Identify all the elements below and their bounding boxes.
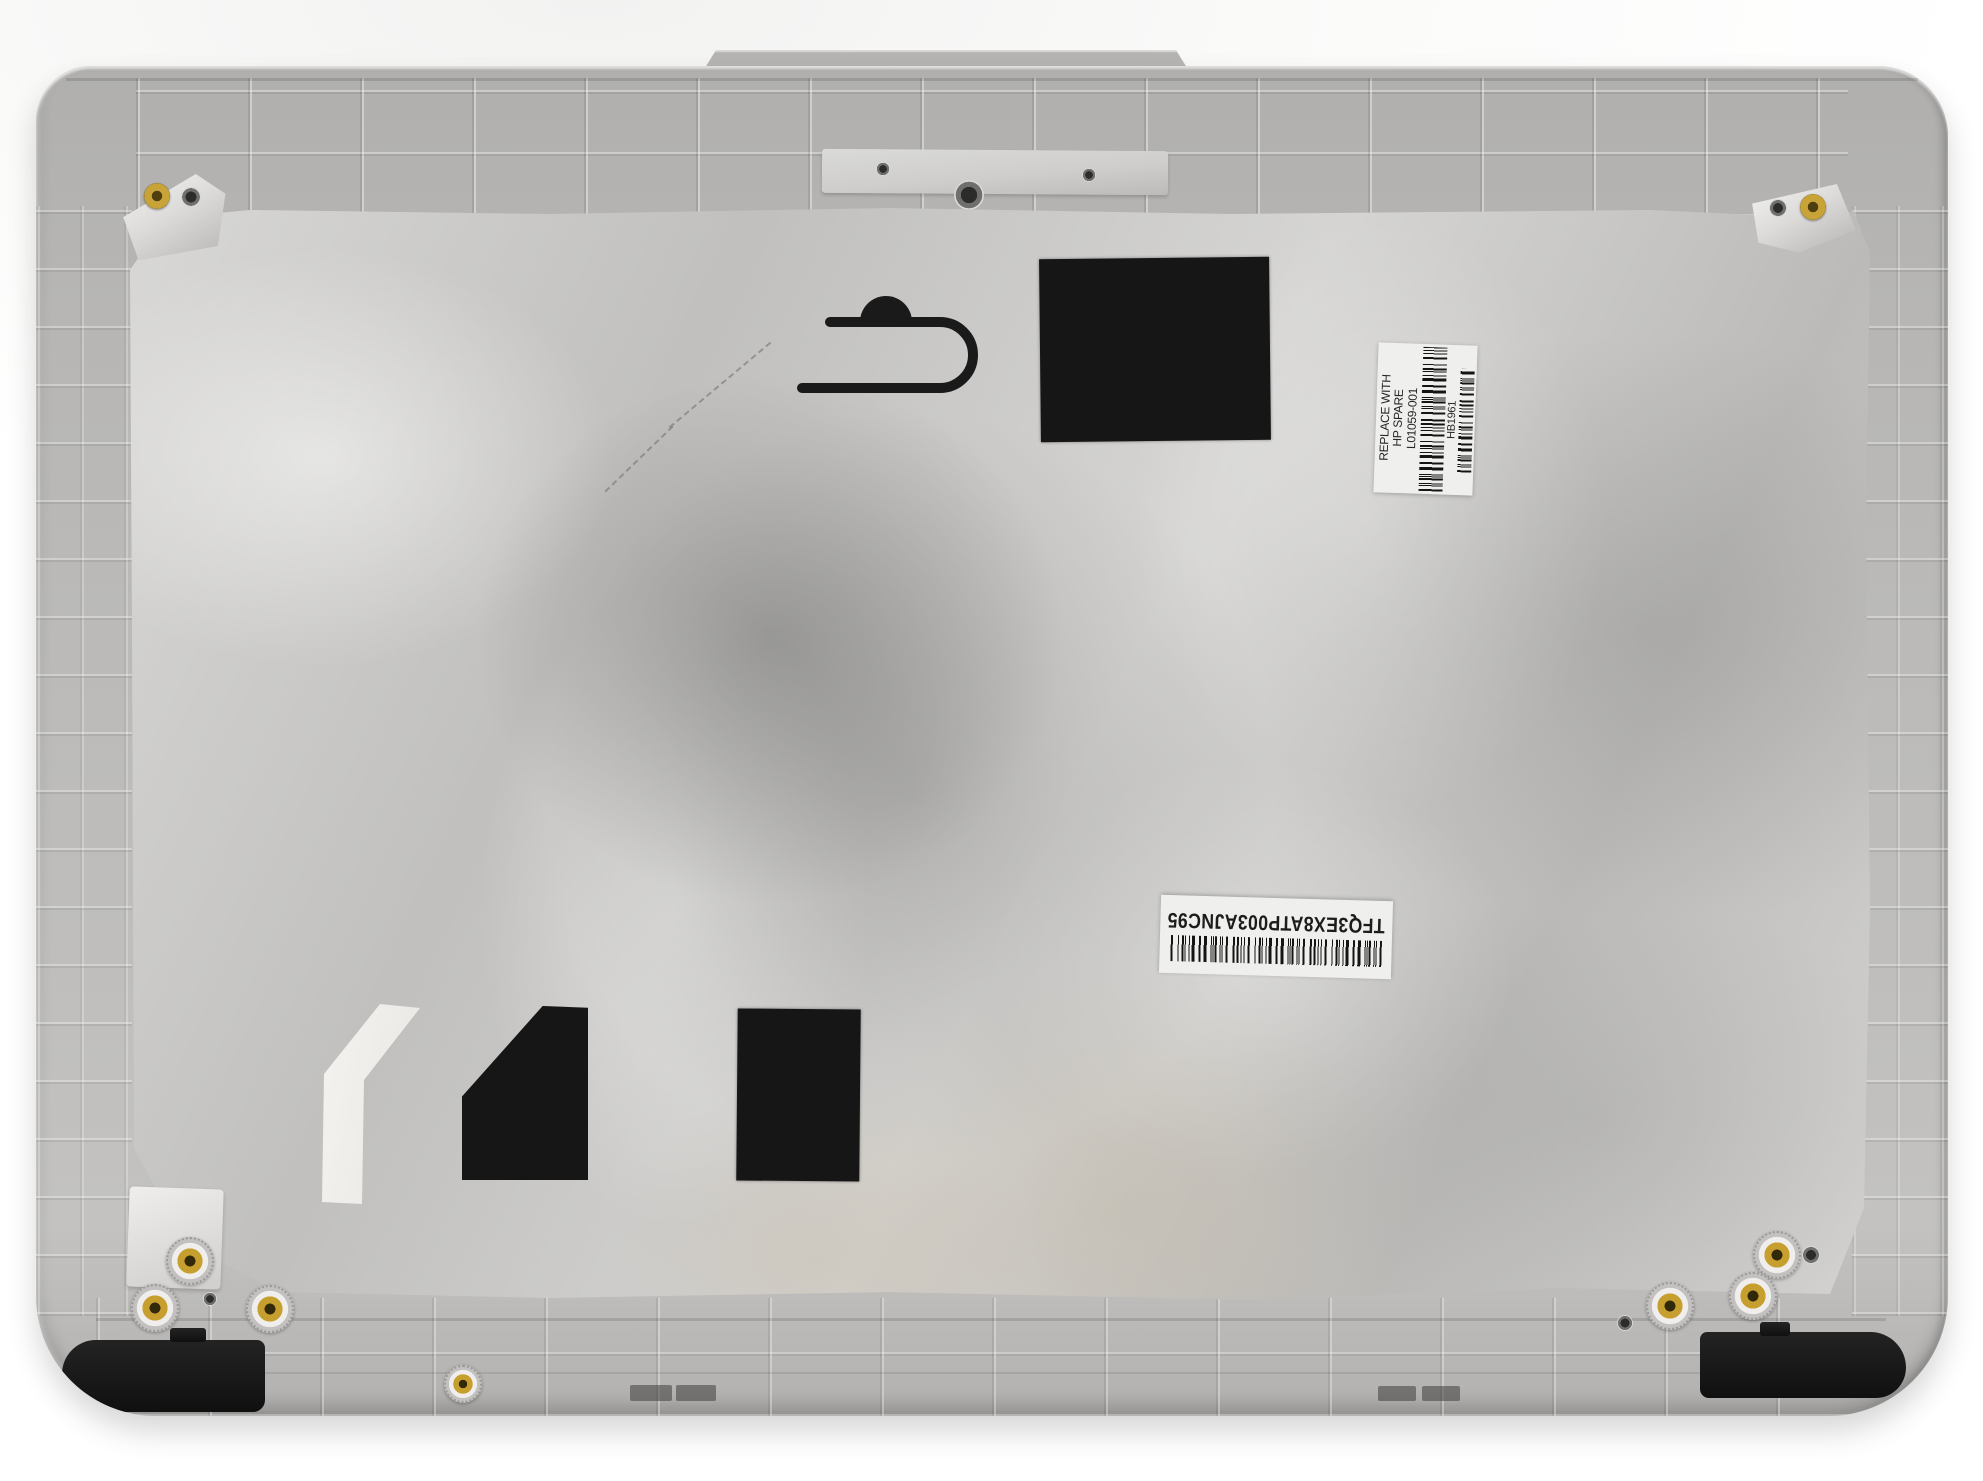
hinge-cap-right	[1700, 1332, 1906, 1398]
screw-hole-icon	[1617, 1315, 1633, 1331]
hinge-cap-left-notch	[170, 1328, 206, 1342]
barcode-icon	[1457, 368, 1475, 472]
hinge-screw-boss	[166, 1237, 214, 1285]
molded-rib-rail-left	[36, 206, 132, 1316]
silver-screw-icon	[143, 1251, 165, 1273]
top-edge-seam	[66, 78, 1918, 81]
barcode-icon	[1419, 347, 1448, 492]
antenna-pad-top	[1039, 257, 1271, 442]
serial-number: TFQ3EX8ATP003AJNC95	[1167, 907, 1385, 937]
hinge-screw-boss	[246, 1285, 294, 1333]
round-hole-icon	[954, 180, 984, 210]
hinge-cap-left	[62, 1340, 265, 1412]
hinge-screw-boss	[1646, 1282, 1694, 1330]
vent-slot	[1422, 1386, 1460, 1401]
bottom-edge-seam	[96, 1372, 1886, 1374]
screw-hole-icon	[181, 187, 201, 207]
hinge-screw-boss	[131, 1284, 179, 1332]
hp-spare-label: REPLACE WITH HP SPARE L01059-001 HB1961	[1373, 342, 1477, 495]
webcam-u-outline	[802, 322, 973, 388]
screw-hole-icon	[203, 1292, 217, 1306]
bracket-screw-hole-icon	[1082, 168, 1096, 182]
lcd-back-cover-body: REPLACE WITH HP SPARE L01059-001 HB1961 …	[36, 66, 1948, 1416]
hinge-screw-boss	[1729, 1272, 1777, 1320]
product-photo-laptop-back-cover: REPLACE WITH HP SPARE L01059-001 HB1961 …	[0, 0, 1983, 1481]
antenna-pad-bottom-mid	[736, 1008, 860, 1181]
hinge-screw-boss	[1753, 1231, 1801, 1279]
hinge-screw-boss	[444, 1365, 482, 1403]
vent-slot	[676, 1385, 716, 1401]
hp-spare-label-content: REPLACE WITH HP SPARE L01059-001 HB1961	[1374, 342, 1477, 495]
gold-screw-icon	[1800, 194, 1826, 220]
metal-bracket	[822, 149, 1168, 195]
vent-slot	[1378, 1386, 1416, 1401]
label-code: HB1961	[1446, 401, 1459, 439]
gold-screw-icon	[144, 183, 170, 209]
bracket-screw-hole-icon	[876, 162, 890, 176]
molded-rib-grid-top	[136, 78, 1848, 218]
serial-label: TFQ3EX8ATP003AJNC95	[1159, 895, 1393, 979]
vent-slot	[630, 1385, 672, 1401]
screw-hole-icon	[1769, 199, 1787, 217]
hinge-cap-right-notch	[1760, 1322, 1790, 1336]
barcode-icon	[1169, 935, 1382, 967]
label-part-number: L01059-001	[1405, 388, 1420, 449]
screw-hole-icon	[1802, 1246, 1820, 1264]
webcam-cutout-mark	[790, 270, 1010, 430]
